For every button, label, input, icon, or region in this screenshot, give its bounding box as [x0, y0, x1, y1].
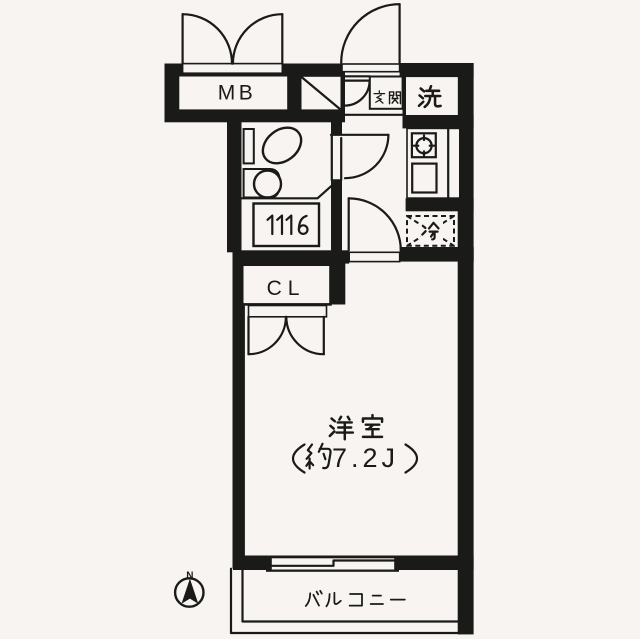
svg-text:MB: MB	[218, 82, 257, 105]
svg-text:7.2J: 7.2J	[332, 443, 399, 473]
svg-text:CL: CL	[267, 277, 306, 300]
